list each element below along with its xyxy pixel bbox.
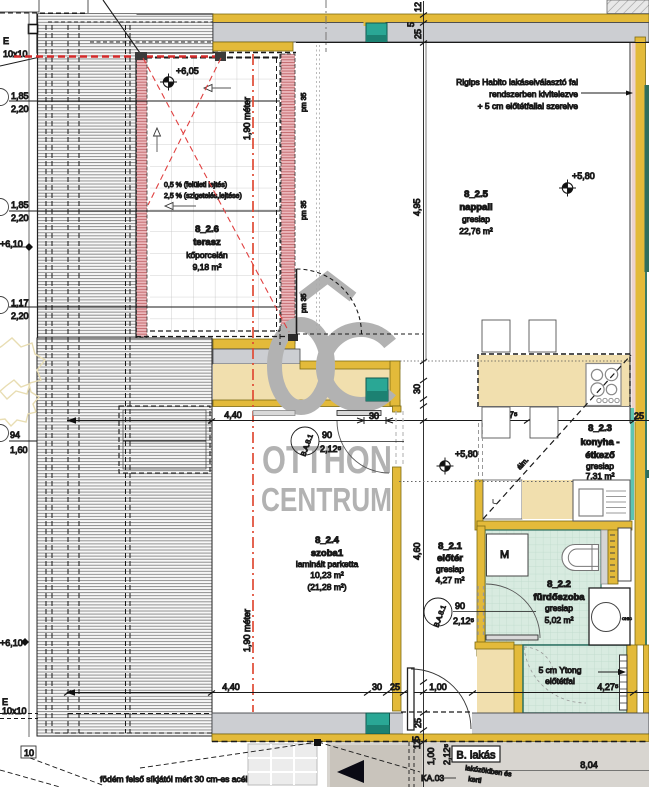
svg-text:90: 90 bbox=[455, 601, 465, 611]
svg-text:1,85: 1,85 bbox=[11, 91, 29, 101]
svg-text:22,76 m²: 22,76 m² bbox=[459, 226, 493, 236]
svg-text:2,12⁵: 2,12⁵ bbox=[453, 616, 475, 626]
svg-text:rendszerben kivitelezve: rendszerben kivitelezve bbox=[489, 89, 578, 99]
svg-text:4,95: 4,95 bbox=[412, 198, 422, 216]
svg-text:étkező: étkező bbox=[585, 450, 615, 461]
svg-text:10: 10 bbox=[24, 748, 34, 758]
svg-text:CENTRUM: CENTRUM bbox=[261, 481, 392, 518]
svg-text:greslap: greslap bbox=[545, 603, 573, 613]
svg-text:(21,28 m²): (21,28 m²) bbox=[307, 582, 346, 592]
svg-text:4,27⁵: 4,27⁵ bbox=[597, 682, 619, 692]
svg-text:pm 35: pm 35 bbox=[301, 200, 308, 220]
svg-text:30: 30 bbox=[369, 411, 379, 421]
svg-text:laminált parketta: laminált parketta bbox=[296, 559, 359, 569]
svg-text:4,27 m²: 4,27 m² bbox=[436, 575, 465, 585]
svg-text:1,90 méter: 1,90 méter bbox=[242, 97, 252, 140]
svg-text:1,00: 1,00 bbox=[426, 747, 436, 765]
svg-text:pm 35: pm 35 bbox=[301, 92, 308, 112]
svg-text:2,12⁵: 2,12⁵ bbox=[320, 444, 342, 454]
svg-text:szoba1: szoba1 bbox=[311, 548, 344, 559]
svg-text:12: 12 bbox=[412, 739, 422, 749]
svg-text:födém felső síkjától mért 30 c: födém felső síkjától mért 30 cm-es acél bbox=[100, 774, 248, 784]
svg-text:1,00: 1,00 bbox=[429, 682, 447, 692]
svg-text:B. lakás: B. lakás bbox=[456, 750, 496, 762]
svg-text:+6,10: +6,10 bbox=[0, 638, 23, 648]
svg-text:2,20: 2,20 bbox=[11, 311, 29, 321]
svg-text:+5,80: +5,80 bbox=[455, 449, 478, 459]
svg-text:8_2.2: 8_2.2 bbox=[547, 579, 571, 590]
svg-text:előtér: előtér bbox=[437, 553, 463, 564]
svg-text:KA.03: KA.03 bbox=[421, 773, 444, 783]
svg-text:30: 30 bbox=[412, 384, 422, 394]
svg-text:8,04: 8,04 bbox=[580, 760, 598, 770]
svg-text:+6,05: +6,05 bbox=[176, 66, 199, 76]
svg-text:greslap: greslap bbox=[462, 214, 490, 224]
svg-text:CHIC: CHIC bbox=[622, 616, 632, 621]
svg-text:+6,10: +6,10 bbox=[0, 239, 23, 249]
svg-text:10x10: 10x10 bbox=[2, 706, 27, 716]
svg-text:fürdőszoba: fürdőszoba bbox=[533, 592, 585, 603]
svg-text:1,17: 1,17 bbox=[11, 298, 29, 308]
svg-text:greslap: greslap bbox=[586, 461, 614, 471]
svg-text:1,60: 1,60 bbox=[10, 445, 28, 455]
svg-text:4,40: 4,40 bbox=[224, 410, 242, 420]
svg-text:25: 25 bbox=[634, 411, 644, 421]
svg-text:8_2.4: 8_2.4 bbox=[315, 535, 339, 546]
svg-text:terasz: terasz bbox=[193, 237, 221, 248]
svg-text:94: 94 bbox=[10, 430, 20, 440]
svg-text:greslap: greslap bbox=[436, 564, 464, 574]
svg-text:2,20: 2,20 bbox=[11, 104, 29, 114]
svg-text:+ 5 cm előtétfallal szerelve: + 5 cm előtétfallal szerelve bbox=[478, 101, 579, 111]
svg-text:90: 90 bbox=[322, 430, 332, 440]
svg-text:30: 30 bbox=[372, 682, 382, 692]
svg-text:konyha -: konyha - bbox=[580, 437, 619, 448]
svg-text:5,02 m²: 5,02 m² bbox=[545, 615, 574, 625]
svg-text:+5,80: +5,80 bbox=[572, 171, 595, 181]
svg-text:Rigips Habito lakáselválasztó: Rigips Habito lakáselválasztó fal bbox=[456, 77, 578, 87]
svg-text:kőporcelán: kőporcelán bbox=[186, 250, 228, 260]
svg-text:5 cm Ytong: 5 cm Ytong bbox=[539, 665, 582, 675]
svg-text:4,40: 4,40 bbox=[222, 682, 240, 692]
svg-text:4,60: 4,60 bbox=[412, 542, 422, 560]
svg-text:1,90 méter: 1,90 méter bbox=[242, 609, 252, 652]
svg-text:pm 35: pm 35 bbox=[301, 293, 308, 313]
svg-text:25: 25 bbox=[390, 682, 400, 692]
svg-text:2,12⁵: 2,12⁵ bbox=[442, 743, 452, 765]
svg-text:8_2.6: 8_2.6 bbox=[195, 224, 219, 235]
svg-text:M: M bbox=[500, 549, 509, 561]
svg-text:8_2.3: 8_2.3 bbox=[588, 423, 612, 434]
svg-text:5: 5 bbox=[406, 22, 416, 27]
svg-text:E: E bbox=[3, 36, 9, 46]
svg-text:8_2.1: 8_2.1 bbox=[438, 541, 462, 552]
svg-text:előtétfal: előtétfal bbox=[545, 676, 575, 686]
svg-text:0,5 % (felületi lejtés): 0,5 % (felületi lejtés) bbox=[164, 182, 227, 189]
svg-text:25: 25 bbox=[413, 29, 423, 39]
svg-text:12: 12 bbox=[413, 2, 423, 12]
svg-text:9,18 m²: 9,18 m² bbox=[193, 262, 222, 272]
svg-text:8_2.5: 8_2.5 bbox=[464, 189, 488, 200]
svg-text:10,23 m²: 10,23 m² bbox=[310, 570, 344, 580]
svg-text:2,20: 2,20 bbox=[11, 213, 29, 223]
svg-text:1,85: 1,85 bbox=[11, 200, 29, 210]
svg-text:nappali: nappali bbox=[459, 202, 492, 213]
svg-text:2,5 % (szigetelés,lejtése): 2,5 % (szigetelés,lejtése) bbox=[164, 193, 242, 200]
